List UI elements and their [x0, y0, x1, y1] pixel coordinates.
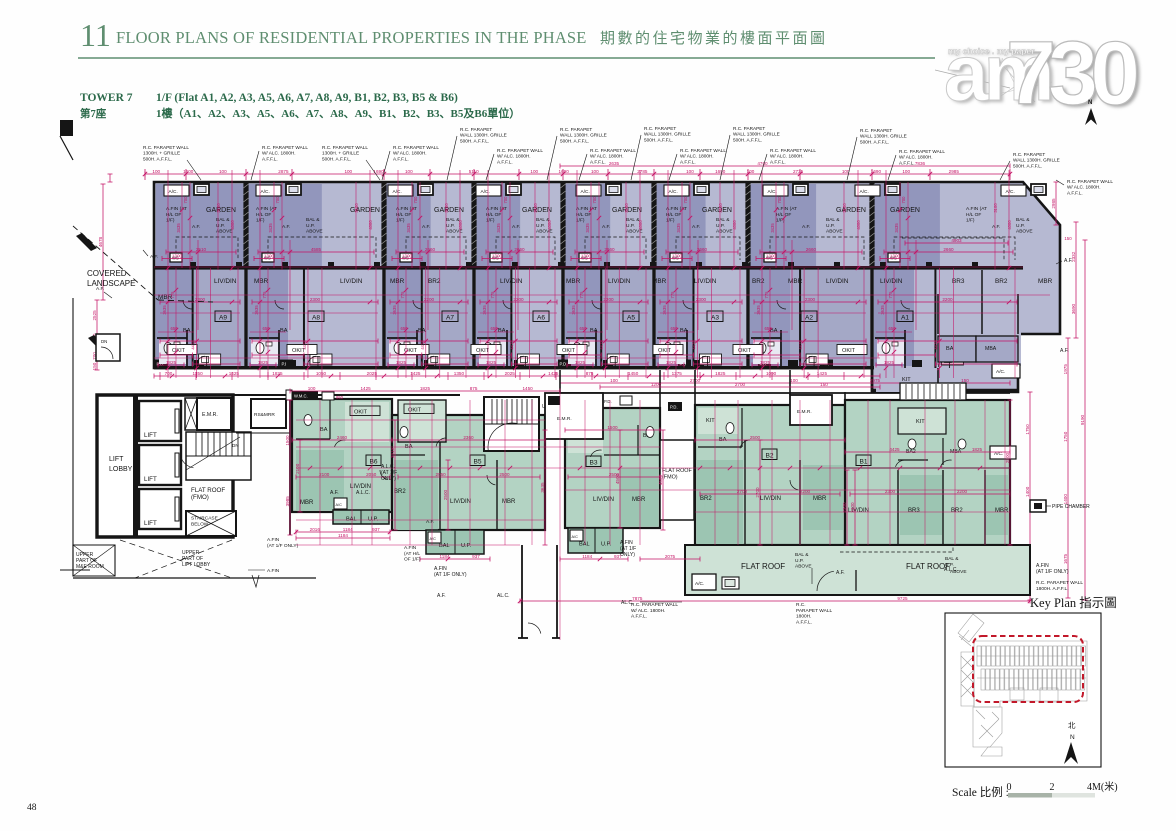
svg-text:R.C. PARAPET: R.C. PARAPET [1013, 152, 1045, 157]
svg-text:4475: 4475 [599, 340, 604, 350]
svg-text:OKIT: OKIT [172, 348, 186, 354]
svg-text:2785: 2785 [637, 169, 648, 174]
svg-text:2500: 2500 [1005, 452, 1010, 463]
svg-text:LOBBY: LOBBY [109, 466, 133, 473]
svg-text:A.F.F.L.: A.F.F.L. [796, 619, 812, 625]
svg-text:A/C.: A/C. [695, 581, 704, 587]
svg-text:A/C.: A/C. [669, 189, 678, 195]
svg-text:W/ ALC. 1800H.: W/ ALC. 1800H. [631, 608, 665, 614]
svg-text:A.F.F.L.: A.F.F.L. [899, 160, 915, 165]
svg-text:2075: 2075 [665, 554, 676, 559]
svg-text:4000: 4000 [230, 220, 235, 230]
svg-text:WALL 1300H. GRILLE: WALL 1300H. GRILLE [644, 132, 691, 137]
svg-text:A.F.: A.F. [602, 224, 610, 230]
svg-text:100: 100 [902, 169, 910, 174]
svg-text:11: 11 [80, 17, 111, 53]
svg-text:A.FIN (AT: A.FIN (AT [396, 206, 417, 212]
svg-text:A.F.F.L.: A.F.F.L. [631, 614, 647, 620]
svg-text:W/ ALC. 1800H.: W/ ALC. 1800H. [590, 154, 624, 159]
svg-text:4M(米): 4M(米) [1087, 780, 1118, 793]
svg-text:2300: 2300 [310, 297, 321, 302]
svg-text:500H. A.F.F.L.: 500H. A.F.F.L. [322, 156, 351, 161]
svg-text:W/ ALC. 1800H.: W/ ALC. 1800H. [1067, 185, 1101, 190]
svg-text:875: 875 [470, 386, 478, 391]
svg-text:100: 100 [591, 169, 599, 174]
svg-text:MBR: MBR [300, 500, 314, 506]
svg-text:U.P.: U.P. [826, 223, 835, 229]
svg-text:1800H.: 1800H. [796, 614, 811, 620]
svg-text:R.C. PARAPET WALL: R.C. PARAPET WALL [1036, 580, 1083, 586]
svg-text:3435: 3435 [406, 223, 411, 233]
svg-text:150: 150 [820, 382, 828, 387]
svg-text:3435: 3435 [676, 223, 681, 233]
svg-text:H/L OF: H/L OF [666, 212, 681, 218]
svg-text:A/C.: A/C. [996, 369, 1005, 375]
svg-text:ABOVE: ABOVE [716, 229, 733, 235]
svg-text:DN: DN [232, 443, 239, 448]
svg-text:A6: A6 [537, 315, 545, 322]
svg-text:北: 北 [1068, 721, 1076, 730]
svg-text:W/ ALC. 1800H.: W/ ALC. 1800H. [393, 151, 427, 156]
svg-text:BR3: BR3 [908, 508, 920, 514]
svg-text:U.P.: U.P. [216, 223, 225, 229]
svg-text:48: 48 [27, 803, 37, 813]
svg-text:A.F.: A.F. [1060, 348, 1069, 354]
svg-text:1800H. A.F.F.L.: 1800H. A.F.F.L. [1036, 586, 1069, 592]
svg-text:BA: BA [320, 427, 328, 433]
svg-text:875: 875 [586, 371, 594, 376]
svg-text:1050: 1050 [316, 371, 327, 376]
svg-text:A/C.: A/C. [169, 189, 178, 195]
svg-text:B3: B3 [589, 460, 597, 467]
svg-text:1425: 1425 [548, 371, 559, 376]
svg-text:B1: B1 [859, 459, 867, 466]
svg-text:4760: 4760 [757, 161, 768, 166]
svg-text:WALL 1300H. GRILLE: WALL 1300H. GRILLE [460, 133, 507, 138]
svg-text:500H. A.F.F.L.: 500H. A.F.F.L. [860, 139, 889, 144]
svg-text:700: 700 [183, 196, 188, 204]
svg-text:2700: 2700 [755, 487, 760, 498]
svg-text:A.F.F.L.: A.F.F.L. [680, 159, 696, 164]
svg-text:2875: 2875 [278, 169, 289, 174]
svg-text:E.M.R.: E.M.R. [202, 412, 218, 418]
svg-text:A.F.: A.F. [992, 224, 1000, 230]
svg-text:100: 100 [308, 386, 316, 391]
svg-text:2500: 2500 [609, 472, 620, 477]
svg-text:2660: 2660 [943, 247, 954, 252]
svg-text:AL.C.: AL.C. [497, 593, 510, 599]
svg-text:2460: 2460 [337, 435, 348, 440]
svg-text:1/F): 1/F) [576, 218, 585, 224]
svg-text:A/C: A/C [572, 535, 579, 539]
svg-text:100: 100 [405, 169, 413, 174]
svg-text:3100: 3100 [718, 203, 723, 213]
svg-text:A.FIN: A.FIN [404, 545, 417, 551]
svg-text:H/L OF: H/L OF [486, 212, 501, 218]
svg-text:A.F.: A.F. [422, 224, 430, 230]
svg-text:R.C. PARAPET: R.C. PARAPET [560, 127, 592, 132]
svg-text:1300: 1300 [672, 253, 683, 258]
svg-text:MBR: MBR [995, 508, 1009, 514]
svg-text:150: 150 [1064, 236, 1072, 241]
svg-text:500H. A.F.F.L.: 500H. A.F.F.L. [733, 137, 762, 142]
svg-text:N: N [1088, 100, 1092, 106]
svg-text:H/L OF: H/L OF [396, 212, 411, 218]
svg-text:1825: 1825 [396, 360, 407, 365]
svg-text:4678: 4678 [98, 236, 103, 247]
svg-text:4903: 4903 [951, 238, 962, 243]
svg-text:BELOW: BELOW [191, 521, 209, 527]
svg-text:A1: A1 [901, 315, 909, 322]
svg-text:937: 937 [372, 527, 380, 532]
svg-text:WALL 1300H. GRILLE: WALL 1300H. GRILLE [1013, 158, 1060, 163]
svg-text:BR2: BR2 [752, 278, 765, 285]
svg-text:2200: 2200 [424, 297, 435, 302]
svg-text:4000: 4000 [638, 220, 643, 230]
svg-text:LANDSCAPE: LANDSCAPE [87, 279, 135, 288]
svg-text:FLOOR PLANS OF RESIDENTIAL PRO: FLOOR PLANS OF RESIDENTIAL PROPERTIES IN… [116, 28, 587, 47]
svg-text:BR3: BR3 [952, 278, 965, 285]
svg-text:ONLY): ONLY) [620, 552, 635, 558]
svg-text:A.F.: A.F. [426, 519, 434, 525]
svg-text:4000: 4000 [856, 220, 861, 230]
svg-text:1300: 1300 [581, 253, 592, 258]
svg-text:2300: 2300 [850, 502, 855, 513]
svg-text:700: 700 [503, 196, 508, 204]
svg-text:700: 700 [275, 196, 280, 204]
svg-text:3100: 3100 [444, 203, 449, 213]
svg-text:1/F): 1/F) [966, 218, 975, 224]
svg-text:BR2: BR2 [951, 508, 963, 514]
svg-text:1450: 1450 [628, 371, 639, 376]
svg-text:4475: 4475 [302, 340, 307, 350]
svg-text:(FMO): (FMO) [191, 494, 209, 501]
svg-text:1/F): 1/F) [666, 218, 675, 224]
svg-text:4475: 4475 [933, 340, 938, 350]
svg-text:TOWER 7: TOWER 7 [80, 92, 133, 104]
svg-text:2200: 2200 [957, 489, 968, 494]
svg-text:A.F.: A.F. [282, 224, 290, 230]
svg-text:3635: 3635 [540, 482, 545, 493]
svg-text:2500: 2500 [443, 489, 448, 500]
svg-text:FLAT ROOF: FLAT ROOF [191, 487, 225, 494]
svg-text:1825: 1825 [166, 360, 177, 365]
svg-text:100: 100 [790, 378, 798, 383]
svg-text:1425: 1425 [360, 386, 371, 391]
svg-text:7836: 7836 [915, 161, 926, 166]
svg-text:A.F.F.L.: A.F.F.L. [262, 156, 278, 161]
svg-text:(AT 1/F ONLY): (AT 1/F ONLY) [267, 543, 299, 549]
svg-text:BR2: BR2 [394, 489, 406, 495]
svg-text:2016: 2016 [310, 527, 321, 532]
svg-text:R.C. PARAPET WALL: R.C. PARAPET WALL [322, 145, 368, 150]
svg-text:WALL 1300H. GRILLE: WALL 1300H. GRILLE [733, 132, 780, 137]
svg-text:3435: 3435 [176, 223, 181, 233]
svg-text:1184: 1184 [582, 554, 592, 559]
svg-text:A/C.: A/C. [860, 189, 869, 195]
svg-text:3100: 3100 [533, 203, 538, 213]
svg-text:A.F.F.L.: A.F.F.L. [590, 159, 606, 164]
svg-text:A.FIN: A.FIN [267, 537, 280, 543]
svg-text:MBR: MBR [390, 278, 405, 285]
svg-text:3435: 3435 [268, 223, 273, 233]
svg-text:BA: BA [946, 346, 954, 352]
svg-text:1/F): 1/F) [486, 218, 495, 224]
svg-text:A.F.: A.F. [692, 224, 700, 230]
svg-text:1090: 1090 [766, 371, 777, 376]
svg-text:3919: 3919 [390, 447, 395, 458]
svg-text:BA: BA [498, 328, 506, 334]
svg-text:A.F.: A.F. [836, 570, 845, 576]
svg-text:A/C: A/C [336, 503, 343, 507]
svg-text:A.FIN (AT: A.FIN (AT [966, 206, 987, 212]
svg-text:KIT: KIT [916, 419, 925, 425]
svg-text:1750: 1750 [1025, 424, 1030, 435]
svg-text:3435: 3435 [496, 223, 501, 233]
svg-text:BA: BA [280, 328, 288, 334]
svg-text:LIV/DIN: LIV/DIN [450, 499, 471, 505]
svg-text:1/F (Flat A1, A2, A3, A5, A6,: 1/F (Flat A1, A2, A3, A5, A6, A7, A8, A9… [156, 92, 458, 104]
svg-text:B6: B6 [369, 459, 377, 466]
svg-text:1825: 1825 [486, 360, 497, 365]
svg-text:R.C. PARAPET WALL: R.C. PARAPET WALL [899, 149, 945, 154]
svg-text:2200: 2200 [513, 297, 524, 302]
svg-text:OF 1/F): OF 1/F) [404, 557, 421, 563]
svg-text:1300: 1300 [172, 253, 183, 258]
svg-text:LIFT: LIFT [144, 432, 157, 439]
svg-text:2: 2 [1050, 782, 1055, 793]
svg-text:950: 950 [336, 395, 344, 400]
svg-text:1300: 1300 [890, 253, 901, 258]
svg-text:A.FIN (AT: A.FIN (AT [666, 206, 687, 212]
svg-text:P.D.: P.D. [560, 362, 568, 367]
svg-text:DN: DN [101, 339, 107, 344]
svg-text:4475: 4475 [420, 340, 425, 350]
svg-text:1200: 1200 [651, 382, 662, 387]
svg-text:P.D.: P.D. [670, 405, 678, 410]
svg-text:2500: 2500 [750, 435, 761, 440]
svg-text:1500: 1500 [607, 425, 618, 430]
svg-text:W/ ALC. 1800H.: W/ ALC. 1800H. [497, 154, 531, 159]
svg-text:4475: 4475 [191, 340, 196, 350]
svg-text:A.F.: A.F. [330, 490, 339, 496]
svg-text:BR2: BR2 [995, 278, 1008, 285]
svg-text:BAL: BAL [579, 542, 590, 548]
svg-text:A.L.C.: A.L.C. [944, 567, 958, 573]
svg-text:B5: B5 [473, 459, 481, 466]
svg-text:R.C. PARAPET WALL: R.C. PARAPET WALL [1067, 179, 1113, 184]
svg-text:BR2: BR2 [428, 278, 441, 285]
svg-text:LIV/DIN: LIV/DIN [880, 278, 903, 285]
svg-text:1300: 1300 [492, 253, 503, 258]
svg-text:2660: 2660 [514, 247, 525, 252]
svg-text:1690: 1690 [715, 169, 726, 174]
svg-text:U.P.: U.P. [368, 517, 379, 523]
svg-text:1825: 1825 [420, 386, 431, 391]
svg-text:1/F): 1/F) [166, 218, 175, 224]
svg-text:R.C. PARAPET: R.C. PARAPET [460, 127, 492, 132]
svg-text:3435: 3435 [770, 223, 775, 233]
svg-text:LIV/DIN: LIV/DIN [760, 496, 781, 502]
svg-text:150: 150 [961, 378, 969, 383]
svg-text:A.FIN (AT: A.FIN (AT [576, 206, 597, 212]
svg-text:WALL 1300H. GRILLE: WALL 1300H. GRILLE [560, 133, 607, 138]
svg-text:1184: 1184 [338, 533, 348, 538]
svg-text:OKIT: OKIT [476, 348, 490, 354]
svg-text:ABOVE: ABOVE [795, 564, 812, 570]
svg-text:100: 100 [152, 169, 160, 174]
svg-text:A.L.C.: A.L.C. [356, 490, 370, 496]
svg-text:BAL &: BAL & [826, 217, 840, 223]
svg-text:FLAT ROOF: FLAT ROOF [741, 562, 785, 571]
svg-text:A.F.: A.F. [512, 224, 520, 230]
svg-text:9190: 9190 [1080, 414, 1085, 425]
svg-text:1825: 1825 [972, 447, 983, 452]
svg-text:RS&MRR: RS&MRR [254, 412, 275, 418]
svg-text:4000: 4000 [368, 220, 373, 230]
svg-text:1/F): 1/F) [256, 218, 265, 224]
svg-text:A.F.F.L.: A.F.F.L. [770, 159, 786, 164]
svg-text:LIV/DIN: LIV/DIN [826, 278, 849, 285]
svg-text:ONLY): ONLY) [381, 476, 396, 482]
svg-text:A.F.F.L.: A.F.F.L. [497, 159, 513, 164]
svg-text:W/ ALC. 1800H.: W/ ALC. 1800H. [899, 155, 933, 160]
svg-text:1/F): 1/F) [396, 218, 405, 224]
svg-text:R.C. PARAPET WALL: R.C. PARAPET WALL [770, 148, 816, 153]
svg-text:BAL: BAL [439, 543, 450, 549]
svg-text:E.M.R.: E.M.R. [797, 409, 812, 415]
svg-text:ABOVE: ABOVE [306, 229, 323, 235]
svg-text:(AT 1/F ONLY): (AT 1/F ONLY) [1036, 569, 1069, 575]
svg-text:700: 700 [165, 371, 173, 376]
svg-text:MBR: MBR [566, 278, 581, 285]
svg-text:A.FIN (AT: A.FIN (AT [166, 206, 187, 212]
svg-text:2700: 2700 [737, 489, 748, 494]
svg-text:A/C.: A/C. [481, 189, 490, 195]
svg-text:1350: 1350 [454, 371, 465, 376]
svg-text:1450: 1450 [522, 386, 533, 391]
svg-text:1825: 1825 [258, 360, 269, 365]
svg-text:100: 100 [344, 169, 352, 174]
svg-text:2050: 2050 [366, 472, 377, 477]
svg-text:1750: 1750 [1063, 431, 1068, 442]
svg-text:N: N [1070, 734, 1075, 741]
svg-text:BAL &: BAL & [795, 552, 809, 558]
svg-text:GARDEN: GARDEN [890, 207, 920, 214]
svg-text:2975: 2975 [870, 378, 881, 383]
svg-text:1400: 1400 [1063, 494, 1068, 505]
svg-text:R.C. PARAPET WALL: R.C. PARAPET WALL [497, 148, 543, 153]
svg-text:1825: 1825 [884, 360, 895, 365]
svg-text:4000: 4000 [458, 220, 463, 230]
svg-text:P.D.: P.D. [604, 399, 612, 404]
svg-text:4000: 4000 [732, 220, 737, 230]
svg-text:4475: 4475 [509, 340, 514, 350]
svg-text:U.P.: U.P. [716, 223, 725, 229]
svg-text:H/L OF: H/L OF [966, 212, 981, 218]
svg-text:2300: 2300 [805, 297, 816, 302]
svg-text:4425: 4425 [889, 447, 900, 452]
svg-text:MBR: MBR [502, 499, 516, 505]
svg-text:R.C. PARAPET: R.C. PARAPET [860, 128, 892, 133]
svg-text:A.F.F.L.: A.F.F.L. [1067, 190, 1083, 195]
svg-text:2660: 2660 [425, 247, 436, 252]
svg-text:730: 730 [1006, 24, 1137, 124]
svg-text:U.P.: U.P. [446, 223, 455, 229]
svg-text:R.C. PARAPET WALL: R.C. PARAPET WALL [680, 148, 726, 153]
svg-text:1425: 1425 [817, 371, 828, 376]
svg-text:BAL &: BAL & [1016, 217, 1030, 223]
svg-text:1350: 1350 [192, 371, 203, 376]
svg-text:500H. A.F.F.L.: 500H. A.F.F.L. [460, 138, 489, 143]
svg-text:1825: 1825 [760, 360, 771, 365]
svg-text:A3: A3 [711, 315, 719, 322]
svg-text:A/C.: A/C. [581, 189, 590, 195]
svg-text:A9: A9 [219, 315, 227, 322]
svg-text:4500: 4500 [658, 474, 663, 485]
svg-text:LIFT: LIFT [144, 520, 157, 527]
svg-text:U.P.: U.P. [626, 223, 635, 229]
svg-text:BAL: BAL [346, 517, 357, 523]
svg-text:2050: 2050 [435, 472, 446, 477]
svg-text:1300: 1300 [766, 253, 777, 258]
svg-text:2660: 2660 [604, 247, 615, 252]
svg-text:MBR: MBR [632, 497, 646, 503]
svg-text:A.FIN (AT: A.FIN (AT [486, 206, 507, 212]
svg-text:R.C. PARAPET WALL: R.C. PARAPET WALL [262, 145, 308, 150]
svg-text:2660: 2660 [806, 247, 817, 252]
svg-text:(AT 1/F ONLY): (AT 1/F ONLY) [434, 572, 467, 578]
svg-text:1400: 1400 [1025, 486, 1030, 497]
svg-text:4585: 4585 [311, 247, 322, 252]
svg-text:1975: 1975 [1063, 364, 1068, 375]
svg-text:3100: 3100 [354, 203, 359, 213]
svg-text:2985: 2985 [1051, 198, 1056, 209]
svg-text:MBR: MBR [1038, 278, 1053, 285]
svg-text:A.F.: A.F. [192, 224, 200, 230]
svg-text:100: 100 [686, 169, 694, 174]
svg-text:Scale 比例 :: Scale 比例 : [952, 785, 1009, 799]
svg-text:W/ ALC. 1800H.: W/ ALC. 1800H. [680, 154, 714, 159]
svg-text:100: 100 [530, 169, 538, 174]
svg-text:MBR: MBR [813, 496, 827, 502]
svg-text:1825: 1825 [575, 360, 586, 365]
svg-text:500H. A.F.F.L.: 500H. A.F.F.L. [560, 138, 589, 143]
svg-text:A.F.: A.F. [1064, 258, 1073, 264]
svg-text:1樓（A1、A2、A3、A5、A6、A7、A8、A9、B1、: 1樓（A1、A2、A3、A5、A6、A7、A8、A9、B1、B2、B3、B5及B… [156, 106, 520, 120]
svg-text:3100: 3100 [624, 203, 629, 213]
svg-text:H/L OF: H/L OF [776, 212, 791, 218]
svg-text:WALL 1300H. GRILLE: WALL 1300H. GRILLE [860, 134, 907, 139]
svg-text:W/ ALC. 1800H.: W/ ALC. 1800H. [262, 151, 296, 156]
svg-text:1300: 1300 [264, 253, 275, 258]
svg-text:A.F.: A.F. [802, 224, 810, 230]
svg-text:1300: 1300 [402, 253, 413, 258]
svg-text:0: 0 [1007, 782, 1012, 793]
svg-text:500H. A.F.F.L.: 500H. A.F.F.L. [644, 137, 673, 142]
svg-text:4475: 4475 [691, 340, 696, 350]
svg-text:A.F.: A.F. [437, 593, 446, 599]
svg-text:R.C. PARAPET WALL: R.C. PARAPET WALL [631, 602, 678, 608]
svg-text:700: 700 [683, 196, 688, 204]
svg-text:2735: 2735 [793, 169, 804, 174]
svg-text:A5: A5 [627, 315, 635, 322]
svg-text:W.M.C.: W.M.C. [294, 394, 308, 399]
svg-text:B2: B2 [765, 453, 773, 460]
svg-text:4000: 4000 [1007, 220, 1012, 230]
svg-text:LIV/DIN: LIV/DIN [340, 278, 363, 285]
svg-text:3100: 3100 [842, 203, 847, 213]
